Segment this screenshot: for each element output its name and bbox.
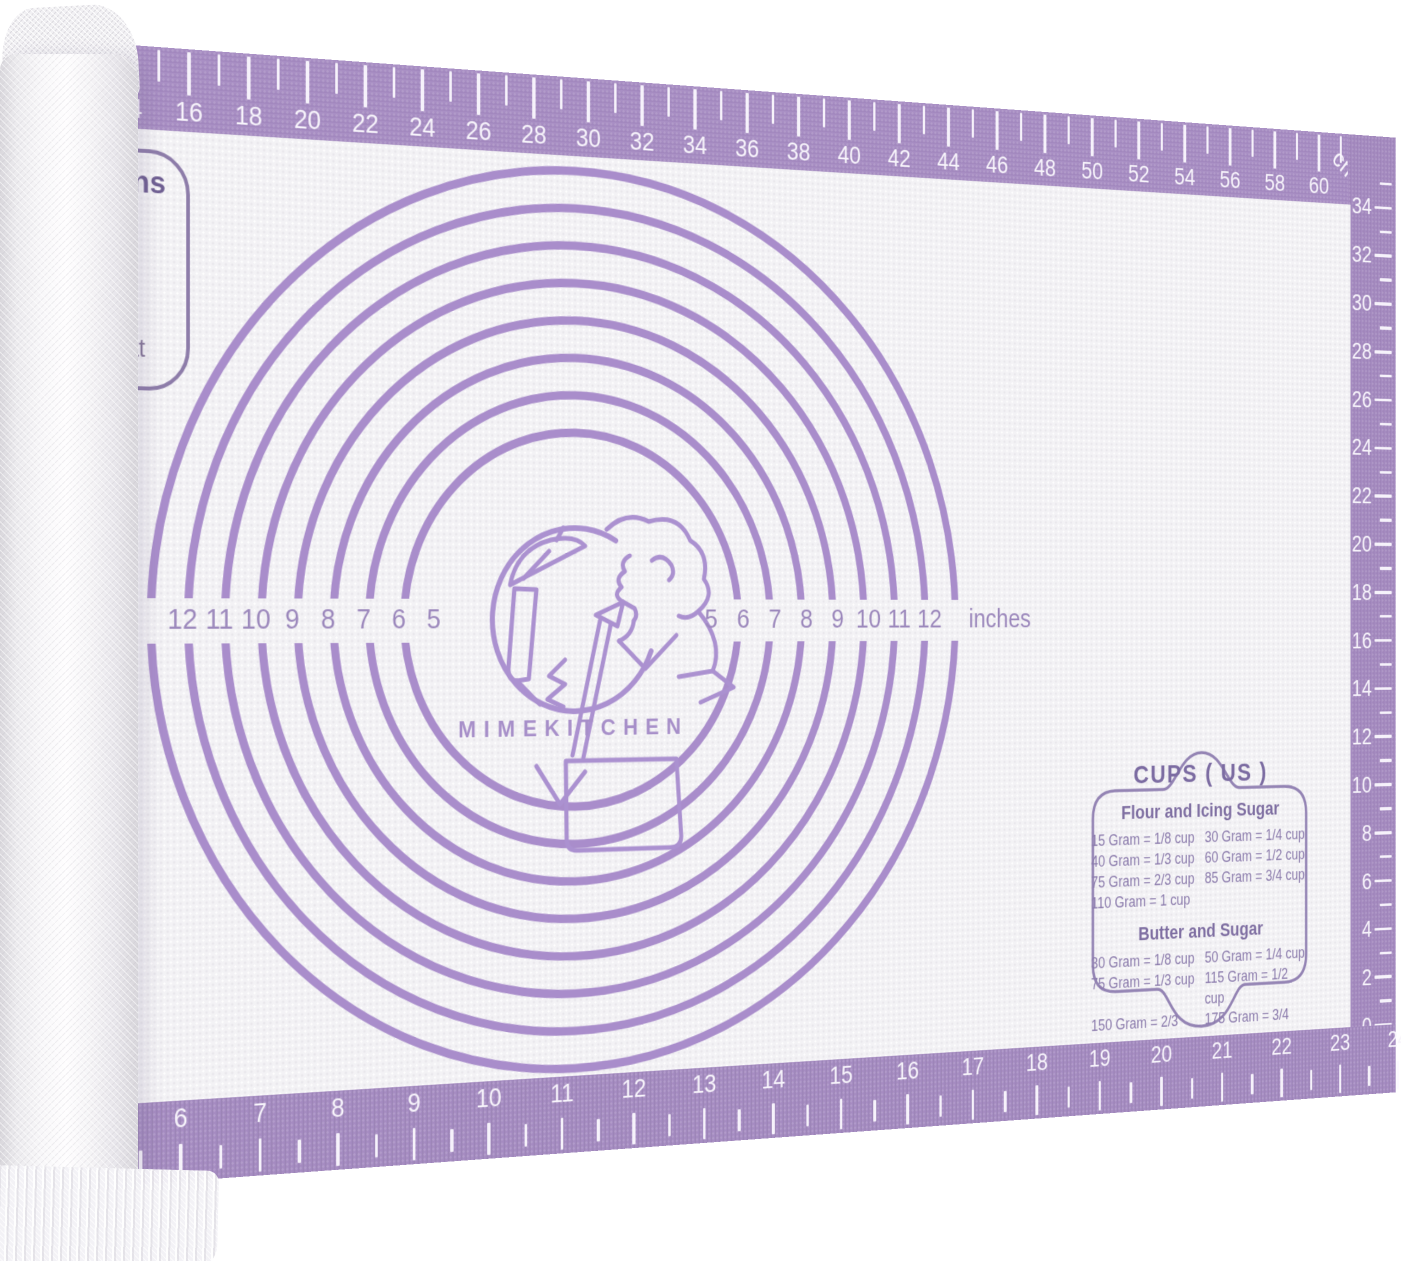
ruler-tick (1380, 855, 1392, 858)
ruler-number: 22 (344, 110, 386, 139)
ruler-tick (1296, 133, 1298, 160)
ruler-tick (873, 1100, 876, 1122)
chart-cell (1205, 884, 1308, 909)
ruler-number: 42 (881, 146, 918, 173)
ruler-tick (703, 1108, 706, 1139)
ruler-tick (1374, 398, 1391, 401)
ruler-tick (1374, 927, 1391, 931)
ruler-tick (1374, 543, 1391, 546)
ruler-number: 16 (1349, 630, 1372, 653)
ruler-tick (720, 91, 723, 121)
ruler-number: 15 (822, 1062, 859, 1089)
ruler-tick (1130, 1082, 1132, 1103)
ruler-tick (939, 1095, 942, 1117)
ruler-tick (1380, 182, 1392, 186)
ruler-tick (561, 1118, 564, 1150)
ruler-tick (848, 100, 851, 140)
ruler-number: 28 (514, 121, 555, 149)
ruler-tick (413, 1128, 416, 1161)
ruler-tick (1004, 1091, 1007, 1112)
ruler-number: 9 (393, 1089, 435, 1118)
ruler-tick (1374, 735, 1391, 738)
ruler-tick (1374, 783, 1391, 786)
ruler-tick (694, 89, 697, 130)
ruler-number: 20 (1349, 533, 1372, 556)
circle-diameter-number: 5 (409, 604, 458, 636)
ruler-tick (1374, 206, 1391, 210)
ruler-number: 4 (1349, 919, 1372, 943)
ruler-tick (258, 1138, 261, 1171)
instructions-partial-text: ns (132, 164, 166, 201)
ruler-number: 32 (622, 128, 661, 156)
ruler-number: 14 (106, 94, 151, 124)
ruler-tick (1380, 374, 1392, 377)
ruler-tick (873, 102, 876, 131)
ruler-tick (1380, 326, 1392, 329)
ruler-tick (336, 1133, 339, 1166)
ruler-number: 56 (1213, 168, 1246, 193)
ruler-tick (1340, 136, 1342, 163)
ruler-tick (364, 65, 367, 108)
ruler-number: 30 (568, 125, 608, 153)
pastry-mat: cm 1416182022242628303234363840424446485… (62, 40, 1396, 1190)
ruler-number: 22 (1349, 485, 1372, 508)
ruler-number: 6 (1349, 870, 1372, 893)
ruler-number: 2 (1349, 967, 1372, 991)
ruler-tick (1374, 446, 1391, 449)
ruler-tick (1374, 831, 1391, 834)
mat-surface: 1211109876556789101112 inches ns nat MIM… (62, 124, 1351, 1108)
ruler-tick (1380, 278, 1392, 282)
ruler-tick (335, 63, 338, 94)
chart-title: CUPS ( US ) (1086, 757, 1313, 791)
ruler-tick (1221, 1073, 1223, 1102)
ruler-number: 28 (1349, 340, 1372, 363)
ruler-number: 58 (1258, 171, 1291, 196)
ruler-number: 40 (831, 142, 868, 169)
ruler-tick (1374, 687, 1391, 690)
ruler-number: 12 (614, 1075, 653, 1103)
ruler-tick (277, 59, 280, 90)
ruler-tick (667, 87, 670, 117)
ruler-number: 22 (1265, 1035, 1298, 1060)
ruler-tick (1374, 591, 1391, 594)
ruler-tick (1067, 1087, 1070, 1108)
ruler-number: 38 (780, 139, 818, 166)
conversion-chart: CUPS ( US ) Flour and Icing Sugar 15 Gra… (1086, 737, 1313, 1044)
ruler-tick (1374, 879, 1391, 883)
ruler-number: 16 (889, 1058, 926, 1084)
ruler-tick (1380, 567, 1392, 570)
ruler-number: 21 (1205, 1038, 1238, 1063)
ruler-number: 24 (1382, 1027, 1401, 1051)
ruler-number: 34 (1349, 195, 1372, 219)
ruler-tick (1380, 423, 1392, 426)
ruler-tick (375, 1134, 378, 1157)
ruler-tick (1380, 519, 1392, 522)
ruler-number: 11 (542, 1080, 582, 1108)
ruler-tick (1374, 975, 1391, 979)
ruler-tick (797, 97, 800, 137)
ruler-tick (1374, 302, 1391, 306)
ruler-number: 30 (1349, 291, 1372, 315)
ruler-number: 44 (930, 149, 966, 175)
ruler-number: 24 (401, 114, 443, 142)
ruler-number: 20 (1144, 1042, 1178, 1067)
ruler-number: 6 (158, 1104, 203, 1133)
ruler-tick (641, 85, 644, 126)
circle-diameter-number: 12 (908, 604, 950, 634)
ruler-number: 20 (286, 106, 329, 135)
ruler-tick (772, 95, 775, 124)
ruler-tick (487, 1123, 490, 1155)
ruler-tick (1380, 759, 1392, 762)
ruler-tick (772, 1103, 775, 1134)
chart-rows: 15 Gram = 1/8 cup 30 Gram = 1/4 cup 40 G… (1086, 823, 1313, 914)
ruler-tick (1099, 1081, 1102, 1111)
ruler-tick (806, 1105, 809, 1127)
ruler-tick (1160, 1077, 1162, 1106)
ruler-tick (1318, 135, 1320, 172)
ruler-tick (1020, 113, 1023, 141)
ruler-tick (219, 1145, 222, 1169)
ruler-tick (972, 1090, 975, 1120)
ruler-number: 16 (167, 98, 211, 127)
ruler-number: 18 (227, 102, 271, 131)
ruler-number: 36 (728, 135, 766, 162)
ruler-number: 46 (979, 152, 1015, 178)
ruler-tick (1114, 120, 1117, 148)
ruler-tick (532, 77, 535, 119)
ruler-tick (1380, 230, 1392, 234)
ruler-tick (1044, 115, 1047, 154)
ruler-tick (1251, 130, 1253, 157)
ruler-number: 24 (1349, 436, 1372, 459)
ruler-tick (139, 1150, 142, 1174)
ruler-tick (1310, 1070, 1312, 1090)
ruler-tick (1138, 121, 1140, 159)
ruler-tick (1374, 254, 1391, 258)
instructions-partial-text: nat (113, 334, 146, 364)
ruler-tick (157, 50, 160, 82)
ruler-tick (1368, 1066, 1370, 1086)
ruler-number: 18 (1349, 581, 1372, 604)
ruler-number: 48 (1027, 155, 1062, 181)
ruler-tick (1339, 1064, 1341, 1093)
chart-cell: 115 Gram = 1/2 cup (1205, 962, 1308, 1008)
ruler-tick (450, 1129, 453, 1152)
chart-cell: 110 Gram = 1 cup (1091, 889, 1198, 914)
ruler-tick (1184, 125, 1186, 163)
ruler-tick (668, 1114, 671, 1136)
ruler-tick (306, 61, 309, 104)
ruler-tick (1380, 615, 1392, 618)
ruler-number: 17 (955, 1054, 991, 1080)
ruler-number: 18 (1019, 1050, 1054, 1076)
ruler-number: 32 (1349, 243, 1372, 267)
ruler-number: 60 (1303, 174, 1335, 199)
ruler-tick (632, 1113, 635, 1145)
ruler-tick (1161, 123, 1163, 151)
ruler-tick (1036, 1085, 1039, 1115)
ruler-tick (1374, 639, 1391, 642)
ruler-tick (1380, 711, 1392, 714)
ruler-tick (906, 1094, 909, 1125)
ruler-tick (840, 1099, 843, 1130)
ruler-tick (179, 1144, 182, 1178)
ruler-number: 7 (238, 1099, 282, 1128)
ruler-number: 8 (1349, 822, 1372, 845)
ruler-number: 13 (685, 1071, 724, 1098)
ruler-tick (560, 79, 563, 109)
ruler-tick (1191, 1078, 1193, 1099)
ruler-tick (217, 54, 220, 86)
ruler-tick (597, 1119, 600, 1142)
ruler-tick (1380, 663, 1392, 666)
ruler-tick (298, 1140, 301, 1163)
ruler-tick (1380, 807, 1392, 810)
ruler-tick (421, 69, 424, 111)
ruler-tick (127, 48, 130, 92)
ruler-tick (1380, 999, 1392, 1003)
ruler-tick (247, 56, 250, 99)
ruler-tick (1067, 116, 1070, 144)
ruler-tick (1396, 1061, 1398, 1089)
ruler-tick (1229, 128, 1231, 166)
ruler-tick (1251, 1074, 1253, 1095)
ruler-tick (947, 107, 950, 146)
ruler-tick (477, 73, 480, 115)
ruler-tick (1374, 495, 1391, 498)
ruler-tick (738, 1109, 741, 1131)
ruler-tick (746, 93, 749, 133)
ruler-tick (1380, 903, 1392, 906)
ruler-number: 14 (754, 1067, 792, 1094)
chart-section-heading: Flour and Icing Sugar (1086, 797, 1313, 826)
inches-unit-label: inches (969, 604, 1031, 634)
ruler-tick (1380, 951, 1392, 955)
ruler-tick (972, 109, 975, 137)
ruler-number: 34 (676, 132, 715, 159)
baking-mat-product-photo: cm 1416182022242628303234363840424446485… (0, 0, 1401, 1261)
ruler-tick (614, 83, 617, 113)
ruler-tick (1280, 1068, 1282, 1097)
ruler-tick (524, 1124, 527, 1147)
chart-cell: 75 Gram = 1/3 cup (1091, 968, 1198, 1015)
ruler-tick (587, 81, 590, 122)
ruler-number: 12 (1349, 726, 1372, 749)
ruler-number: 50 (1075, 159, 1110, 185)
right-cm-ruler: 3432302826242220181614121086420 (1348, 134, 1396, 1096)
ruler-number: 19 (1082, 1046, 1117, 1072)
ruler-tick (449, 71, 452, 102)
ruler-tick (1091, 118, 1094, 156)
ruler-number: 26 (458, 117, 499, 145)
ruler-tick (98, 1149, 101, 1183)
ruler-tick (187, 52, 190, 96)
ruler-number: 14 (1349, 678, 1372, 701)
instructions-box: ns nat (62, 140, 190, 392)
ruler-number: 26 (1349, 388, 1372, 411)
ruler-tick (923, 106, 926, 135)
ruler-tick (505, 75, 508, 105)
ruler-tick (898, 104, 901, 143)
ruler-tick (1374, 350, 1391, 354)
ruler-number: 10 (1349, 774, 1372, 797)
ruler-tick (1380, 471, 1392, 474)
ruler-number: 52 (1122, 162, 1156, 188)
ruler-tick (996, 111, 999, 150)
ruler-tick (823, 98, 826, 127)
ruler-tick (392, 67, 395, 98)
ruler-tick (96, 45, 99, 77)
ruler-tick (1206, 126, 1208, 154)
ruler-number: 23 (1324, 1031, 1356, 1056)
ruler-number: 10 (468, 1085, 509, 1113)
ruler-number: 54 (1168, 165, 1202, 190)
ruler-tick (1274, 131, 1276, 168)
ruler-number: 8 (316, 1094, 359, 1123)
